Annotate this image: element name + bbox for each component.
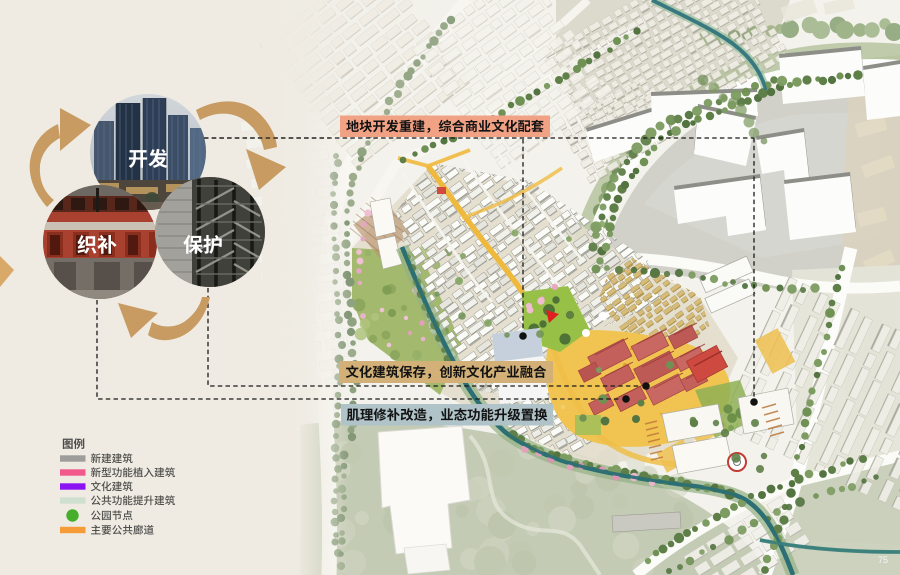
svg-text:75: 75 <box>878 555 888 565</box>
